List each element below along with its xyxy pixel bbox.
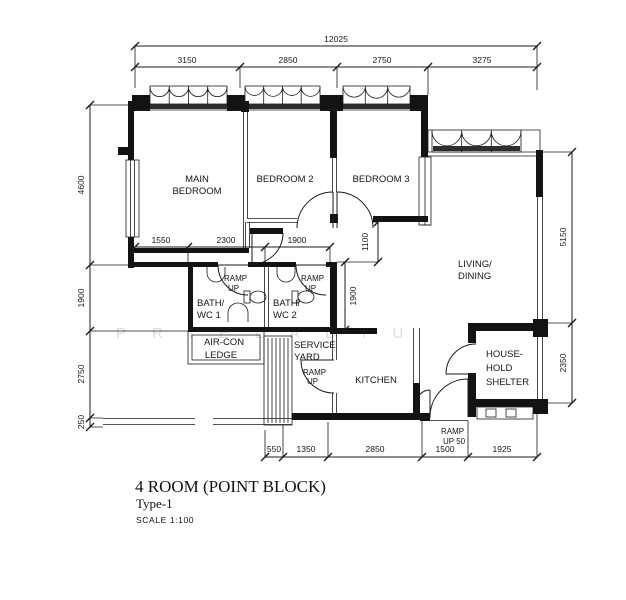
ramp-label-service-yard-2: UP (307, 377, 318, 386)
ramp-label-service-yard-1: RAMP (303, 368, 326, 377)
room-label-bath1-1: BATH/ (197, 298, 225, 309)
room-label-shelter-2: HOLD (486, 363, 513, 374)
toilet-tank-icon-bath1 (244, 291, 250, 303)
room-label-aircon-1: AIR-CON (204, 337, 244, 348)
dim-top-3: 3275 (473, 55, 492, 65)
room-label-bath1-2: WC 1 (197, 310, 221, 321)
dim-left-0: 4600 (76, 175, 86, 194)
basin-icon-bath2 (277, 267, 295, 282)
doors (218, 192, 476, 418)
ramp-label-bath2-2: UP (305, 284, 316, 293)
dim-top-2: 2750 (373, 55, 392, 65)
louvre-screen (264, 336, 292, 425)
ramp-label-bath1-2: UP (228, 284, 239, 293)
plan-title: 4 ROOM (POINT BLOCK) (135, 477, 326, 496)
shelter-vents (477, 407, 533, 419)
door-arc-bedroom2 (297, 192, 333, 228)
door-arc-entrance-main (430, 379, 468, 417)
door-arc-shelter (446, 344, 476, 374)
room-label-bath2-2: WC 2 (273, 310, 297, 321)
dim-inner-v-0: 1100 (360, 233, 370, 252)
dim-top-1: 2850 (279, 55, 298, 65)
window-bedroom3 (343, 86, 410, 104)
dim-bottom-0: 550 (267, 444, 281, 454)
room-label-shelter-1: HOUSE- (486, 349, 523, 360)
window-bedroom2 (245, 86, 320, 104)
ramp-label-bath1-1: RAMP (224, 274, 247, 283)
floor-plan-page: PRIELADIU (0, 0, 626, 600)
dim-left-3: 250 (76, 415, 86, 429)
plan-scale: SCALE 1:100 (136, 515, 194, 525)
dim-left-2: 2750 (76, 364, 86, 383)
room-label-service-yard-1: SERVICE (294, 340, 336, 351)
dim-bottom-2: 2850 (366, 444, 385, 454)
room-label-kitchen: KITCHEN (355, 375, 397, 386)
plan-type: Type-1 (136, 496, 173, 511)
dim-bottom-1: 1350 (297, 444, 316, 454)
window-bedroom3-internal (419, 157, 431, 225)
dim-inner-h-2: 1900 (288, 235, 307, 245)
dim-inner-h-1: 2300 (217, 235, 236, 245)
title-block: 4 ROOM (POINT BLOCK) Type-1 SCALE 1:100 (135, 477, 326, 525)
basin-icon-bath1 (207, 267, 225, 282)
ramp-label-entrance-2: UP 50 (443, 437, 466, 446)
room-label-living-1: LIVING/ (458, 259, 492, 270)
window-main-bedroom-side (126, 160, 139, 237)
room-label-aircon-2: LEDGE (205, 350, 237, 361)
dim-left-1: 1900 (76, 288, 86, 307)
dim-inner-v-1: 1900 (348, 286, 358, 305)
room-label-bedroom3: BEDROOM 3 (352, 174, 409, 185)
room-label-bath2-1: BATH/ (273, 298, 301, 309)
room-label-living-2: DINING (458, 271, 491, 282)
room-label-shelter-3: SHELTER (486, 377, 529, 388)
room-label-service-yard-2: YARD (294, 352, 320, 363)
shower-icon-bath1 (228, 303, 248, 322)
dim-right-0: 5150 (558, 227, 568, 246)
room-label-bedroom2: BEDROOM 2 (256, 174, 313, 185)
dim-bottom-4: 1925 (493, 444, 512, 454)
dim-right-1: 2350 (558, 353, 568, 372)
door-arc-main-bedroom (252, 233, 283, 264)
room-label-main-bedroom-2: BEDROOM (172, 186, 221, 197)
door-arc-bedroom3 (337, 192, 373, 228)
ramp-label-bath2-1: RAMP (301, 274, 324, 283)
dim-inner-h-0: 1550 (152, 235, 171, 245)
dim-overall-width: 12025 (324, 34, 348, 44)
dim-top-0: 3150 (178, 55, 197, 65)
floor-plan-svg: PRIELADIU (0, 0, 626, 600)
toilet-bowl-icon-bath1 (250, 291, 266, 303)
room-label-main-bedroom-1: MAIN (185, 174, 209, 185)
window-main-bedroom (150, 86, 227, 104)
ramp-label-entrance-1: RAMP (441, 427, 464, 436)
